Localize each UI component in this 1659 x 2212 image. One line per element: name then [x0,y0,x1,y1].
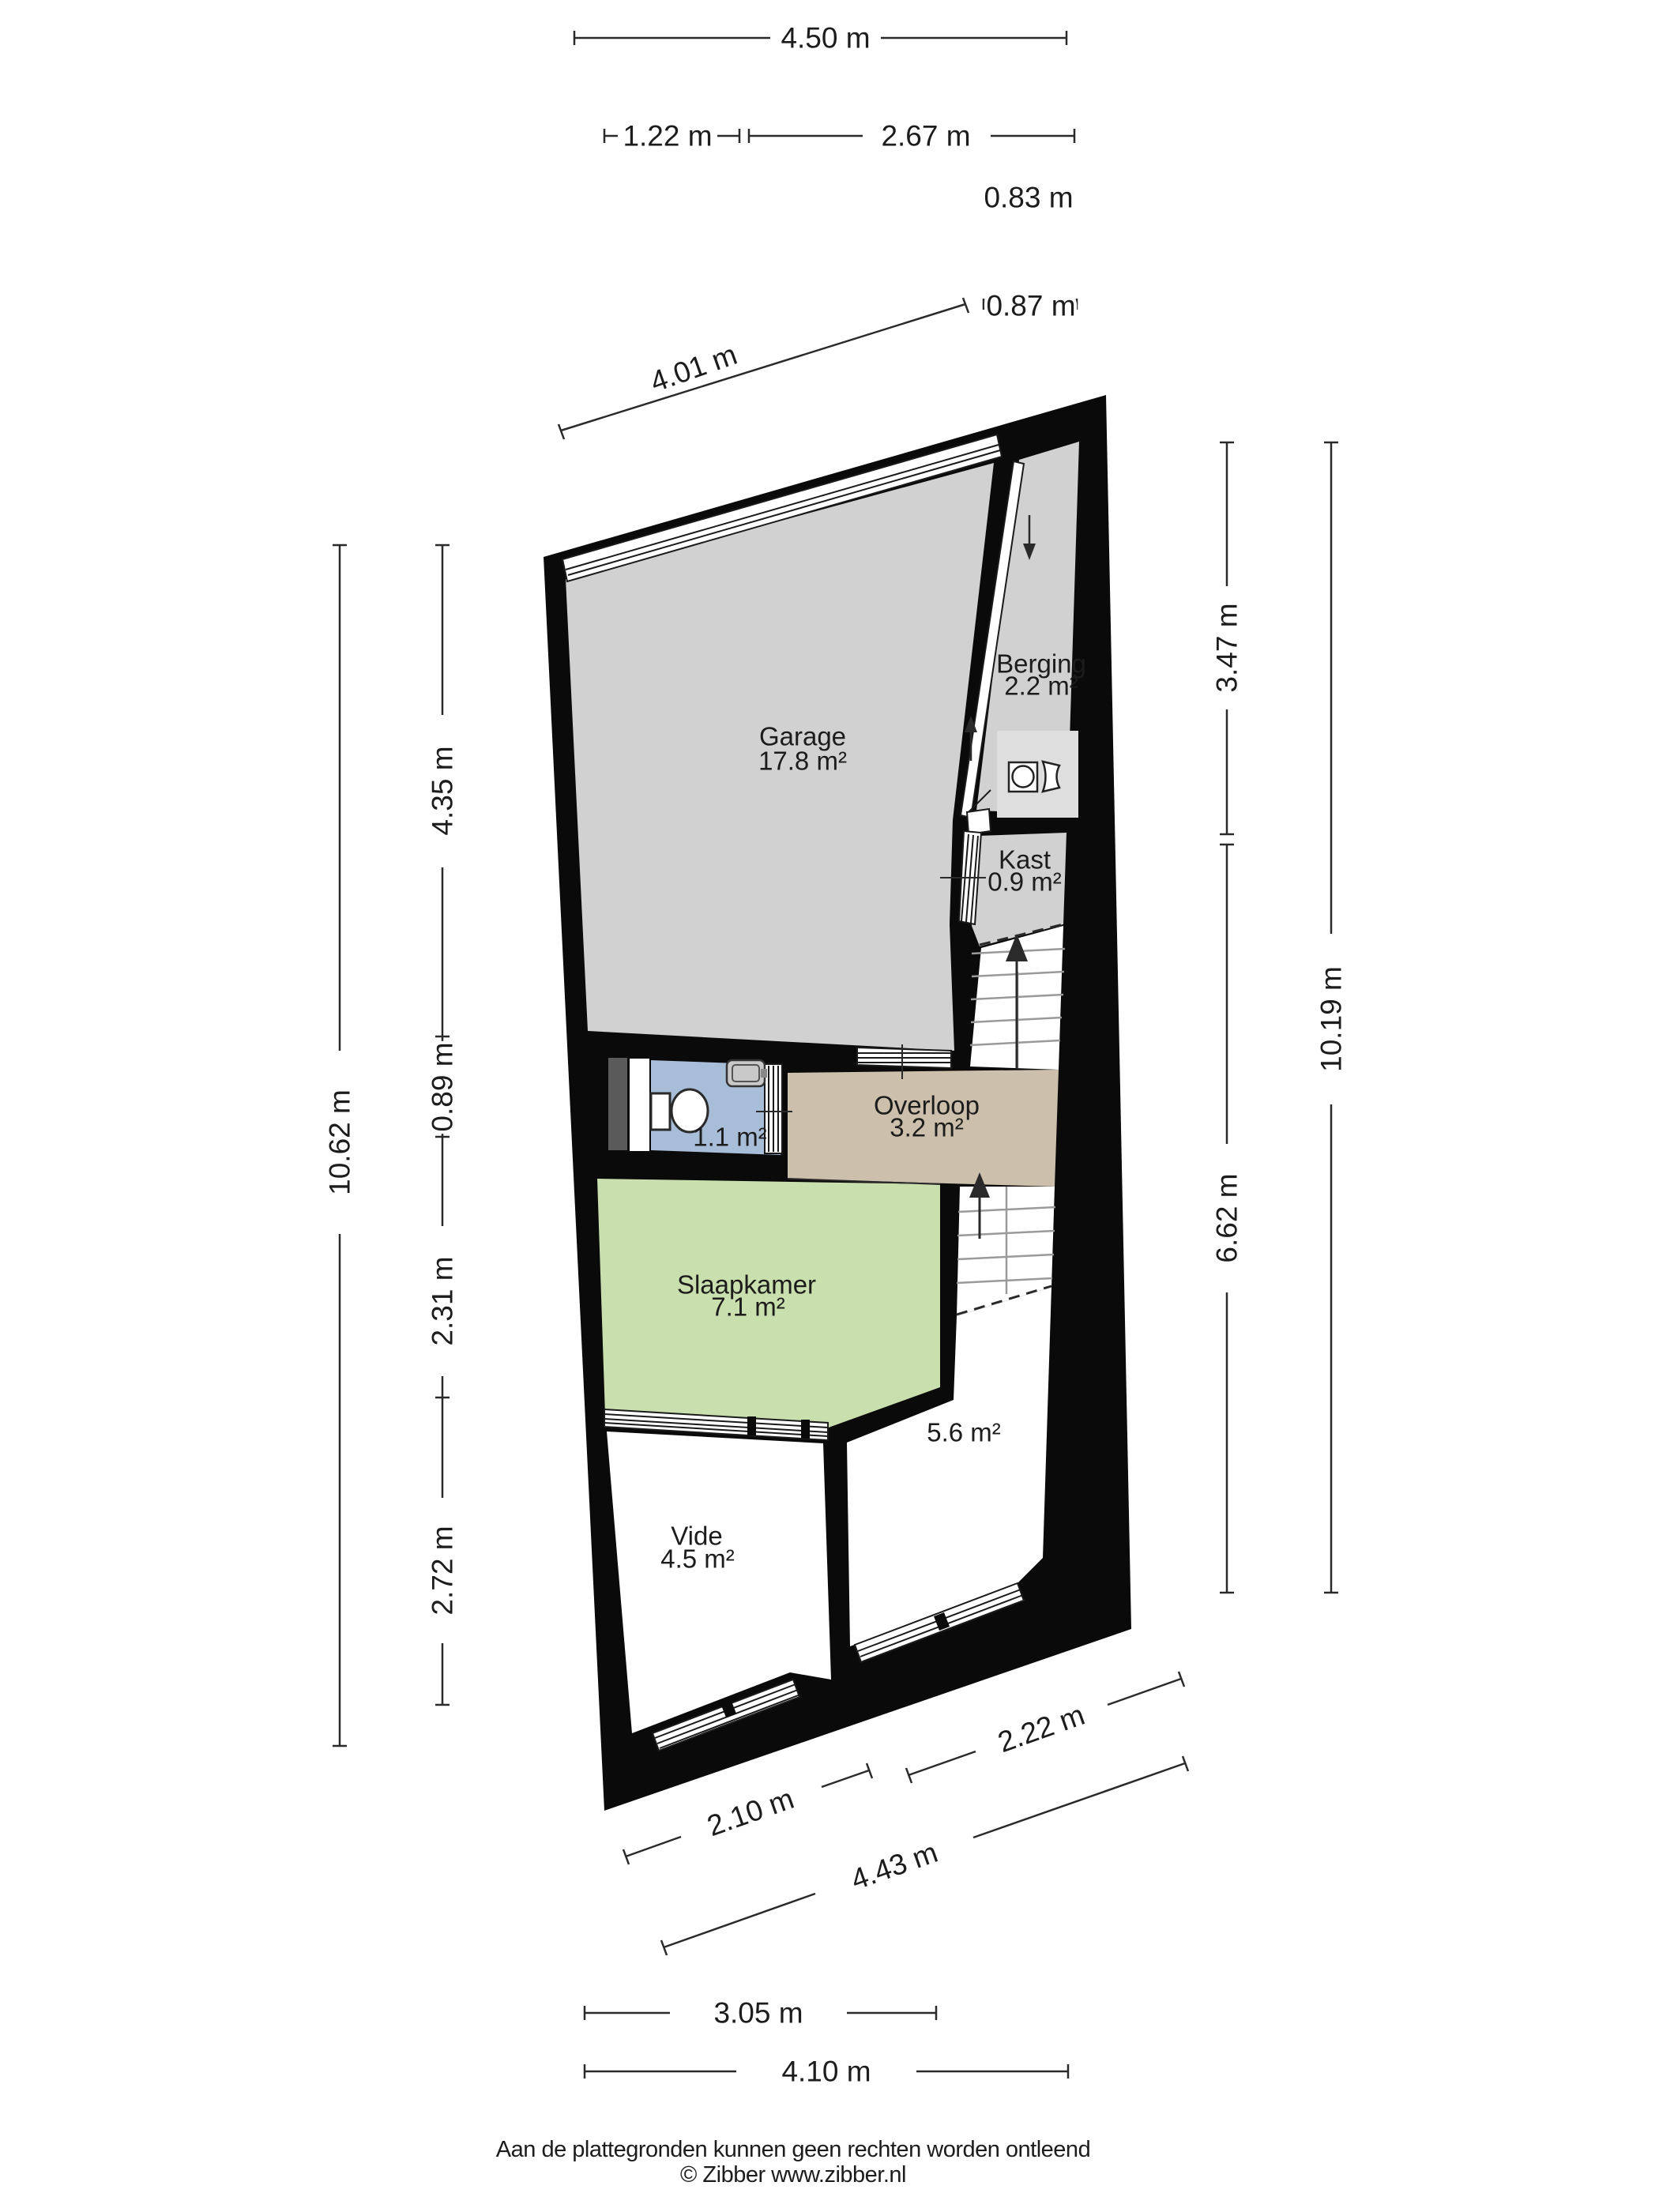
dim-top-seg2: 2.67 m [881,120,970,152]
dim-bottom-seg2: 2.22 m [994,1698,1089,1759]
building [544,395,1131,1811]
floorplan-canvas: Garage 17.8 m² Berging 2.2 m² Kast 0.9 m… [0,0,1659,2212]
overloop-area: 3.2 m² [890,1113,964,1142]
dim-bottom-wall: 4.43 m [847,1836,942,1896]
dim-right-seg2: 6.62 m [1211,1173,1243,1262]
sink-icon [727,1060,767,1086]
washing-machine-icon [1009,762,1037,792]
interior-window [857,1048,951,1068]
toilet-area: 1.1 m² [693,1123,767,1152]
laundry-basket-icon [1043,762,1059,792]
slaapkamer-area: 7.1 m² [711,1292,785,1322]
dim-top-offset2: 0.87 m [986,290,1075,322]
footer: Aan de plattegronden kunnen geen rechten… [496,2137,1090,2188]
dim-left-seg3: 2.31 m [427,1256,459,1345]
wall-recess-dark [608,1058,627,1150]
dim-top-seg1: 1.22 m [623,120,712,152]
dim-left-seg4: 2.72 m [427,1525,459,1615]
copyright-text: © Zibber www.zibber.nl [680,2162,906,2188]
dim-left-seg1: 4.35 m [427,746,459,835]
zolderkamer-area: 5.6 m² [927,1418,1001,1447]
dim-top-offset1: 0.83 m [984,182,1073,214]
laundry-area [997,731,1078,818]
dim-bottom-seg1: 2.10 m [703,1782,798,1842]
toilet-door-recess [630,1059,649,1151]
dim-bottom-inner: 3.05 m [713,1997,803,2030]
dim-right-seg1: 3.47 m [1211,603,1243,692]
garage-area: 17.8 m² [758,747,847,776]
kast-area: 0.9 m² [987,867,1062,897]
dim-right-total: 10.19 m [1315,966,1348,1072]
dim-left-seg2: 0.89 m [427,1042,459,1131]
disclaimer-text: Aan de plattegronden kunnen geen rechten… [496,2137,1090,2162]
dim-left-total: 10.62 m [324,1089,356,1195]
dim-top-total: 4.50 m [781,22,870,55]
vide-area: 4.5 m² [660,1544,735,1574]
toilet-door [765,1064,782,1153]
berging-area: 2.2 m² [1004,671,1078,701]
dim-bottom-total: 4.10 m [781,2056,871,2088]
